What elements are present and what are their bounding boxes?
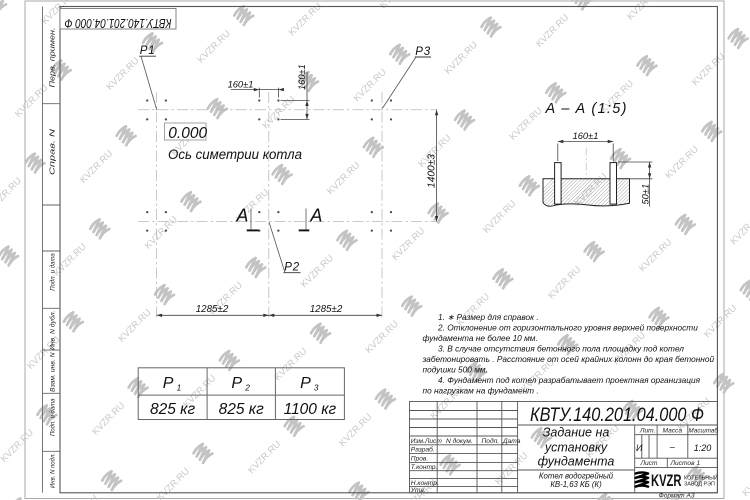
svg-text:1: 1 [697, 460, 701, 467]
svg-text:P: P [163, 375, 174, 392]
svg-text:Инв. N дубл.: Инв. N дубл. [49, 311, 57, 351]
svg-text:160±1: 160±1 [228, 80, 254, 90]
svg-text:160±1: 160±1 [297, 64, 307, 90]
svg-text:A: A [235, 205, 248, 225]
svg-text:по нагрузкам на фундамент .: по нагрузкам на фундамент . [423, 385, 539, 395]
svg-text:Разраб.: Разраб. [411, 446, 435, 454]
svg-text:1:20: 1:20 [694, 443, 712, 453]
svg-text:Дата: Дата [502, 438, 521, 445]
svg-text:Инв. N подл.: Инв. N подл. [49, 453, 57, 488]
svg-text:160±1: 160±1 [573, 131, 599, 141]
svg-text:Задание на: Задание на [543, 426, 610, 440]
svg-text:Изм.Лист: Изм.Лист [411, 438, 443, 445]
svg-text:Взам. инв. N: Взам. инв. N [50, 352, 57, 392]
svg-text:P: P [231, 375, 242, 392]
svg-text:P2: P2 [284, 262, 300, 274]
svg-text:1400±3: 1400±3 [426, 154, 437, 188]
svg-text:N докум.: N докум. [446, 437, 473, 445]
svg-text:Справ. N: Справ. N [48, 128, 57, 175]
svg-text:A – A (1:5): A – A (1:5) [545, 101, 627, 117]
svg-text:Утв.: Утв. [410, 487, 426, 494]
svg-text:Формат А3: Формат А3 [658, 492, 694, 499]
svg-text:–: – [670, 442, 675, 452]
svg-text:P1: P1 [140, 45, 156, 57]
svg-text:Подп.: Подп. [482, 437, 500, 445]
svg-text:Лист: Лист [640, 460, 658, 467]
svg-text:КВТУ.140.201.04.000 Ф: КВТУ.140.201.04.000 Ф [530, 404, 704, 426]
svg-text:825 кг: 825 кг [219, 401, 264, 418]
svg-text:Ось симетрии котла: Ось симетрии котла [168, 147, 302, 162]
svg-text:Лит.: Лит. [639, 428, 656, 435]
svg-text:Листов: Листов [670, 460, 696, 467]
svg-text:КВТУ.140.201.04.000 Ф: КВТУ.140.201.04.000 Ф [64, 16, 171, 30]
svg-text:фундамента не более 10 мм.: фундамента не более 10 мм. [423, 333, 538, 343]
svg-text:Масштаб: Масштаб [689, 427, 719, 435]
svg-text:ЗАВОД РЭП: ЗАВОД РЭП [684, 482, 715, 488]
svg-text:P3: P3 [415, 46, 431, 58]
svg-text:50±1: 50±1 [640, 184, 650, 205]
svg-text:825 кг: 825 кг [150, 401, 195, 418]
svg-text:P: P [300, 375, 311, 392]
svg-text:4. Фундамент под котел разраб: 4. Фундамент под котел разрабатывает про… [438, 375, 701, 385]
svg-text:1285±2: 1285±2 [310, 304, 343, 315]
svg-text:A: A [309, 205, 322, 225]
svg-text:0.000: 0.000 [168, 125, 207, 142]
svg-text:Подп. и дата: Подп. и дата [49, 398, 57, 436]
svg-text:И: И [636, 443, 643, 453]
svg-text:1: 1 [177, 382, 182, 392]
svg-text:подушки 500 мм.: подушки 500 мм. [423, 364, 488, 374]
svg-text:КВ-1,63 КБ (К): КВ-1,63 КБ (К) [550, 480, 602, 489]
svg-text:КОТЕЛЬНЫЙ: КОТЕЛЬНЫЙ [684, 473, 718, 481]
svg-text:Перв. примен.: Перв. примен. [48, 28, 57, 88]
svg-text:забетонировать . Расстояние о: забетонировать . Расстояние от осей край… [422, 354, 715, 364]
svg-text:Т.контр.: Т.контр. [411, 464, 438, 471]
svg-text:Подп. и дата: Подп. и дата [49, 253, 57, 291]
svg-text:1. ∗ Размер для справок .: 1. ∗ Размер для справок . [438, 312, 539, 322]
svg-text:3: 3 [314, 382, 319, 392]
svg-text:фундамента: фундамента [538, 455, 615, 469]
svg-text:3. В случае отсутствия бетонн: 3. В случае отсутствия бетонного пола пл… [438, 343, 684, 353]
svg-text:Пров.: Пров. [411, 455, 429, 462]
svg-text:Котел водогрейный: Котел водогрейный [539, 471, 614, 480]
svg-text:KVZR: KVZR [651, 472, 682, 490]
svg-text:1285±2: 1285±2 [196, 304, 229, 315]
svg-text:установку: установку [544, 441, 608, 455]
svg-text:Масса: Масса [663, 428, 683, 435]
svg-text:2: 2 [244, 382, 250, 392]
svg-text:1100 кг: 1100 кг [284, 401, 337, 418]
svg-text:2. Отклонение от горизонтальн: 2. Отклонение от горизонтального уровня … [437, 322, 698, 332]
